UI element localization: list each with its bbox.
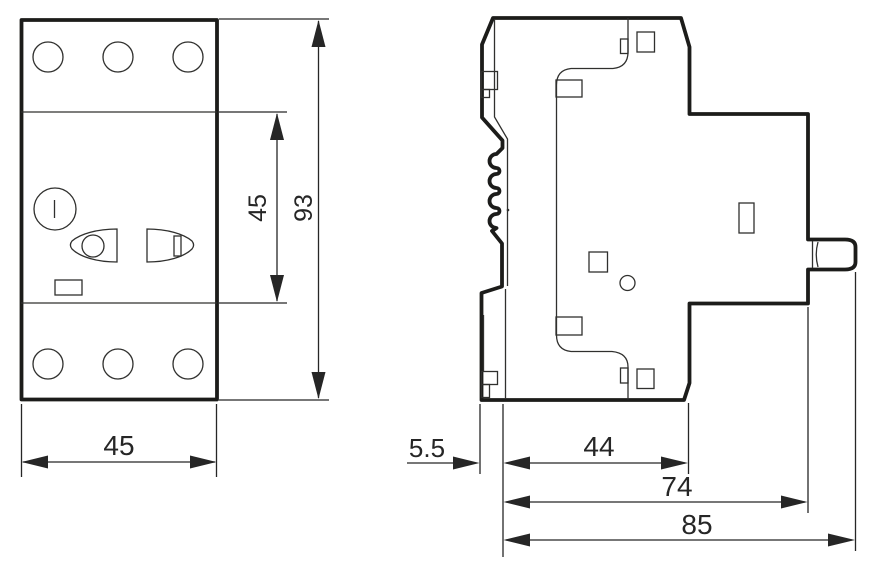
detail-rect — [637, 369, 654, 389]
detail-dot — [507, 209, 510, 212]
front-body — [22, 20, 218, 400]
front-section-contour — [557, 18, 629, 400]
arrowhead-up — [270, 113, 284, 140]
terminal-circle — [33, 42, 63, 72]
arrowhead-up — [312, 20, 326, 47]
arrowhead-right — [190, 456, 217, 469]
button-right — [147, 229, 194, 262]
side-dimensions: 5.5 44 74 85 — [407, 272, 856, 557]
detail-circle — [620, 276, 635, 291]
detail-rect — [621, 39, 629, 54]
side-body-outline — [482, 18, 856, 400]
detail-rect — [589, 252, 608, 272]
dim-label-body-depth: 74 — [661, 471, 692, 502]
terminal-circle — [103, 42, 133, 72]
button-right-slot — [174, 236, 181, 256]
rail-clip-bottom — [482, 372, 498, 385]
dim-label-total-depth: 85 — [681, 509, 712, 540]
dim-label-section-height: 45 — [244, 194, 272, 222]
terminal-circle — [33, 349, 63, 379]
detail-rect — [621, 368, 629, 383]
dimension-drawing: 45 93 45 — [0, 0, 870, 567]
dim-label-clip-depth: 5.5 — [409, 433, 445, 463]
drawing-canvas: 45 93 45 — [0, 0, 870, 567]
front-label-window — [55, 280, 82, 295]
detail-rect — [739, 203, 754, 233]
terminal-circle — [173, 349, 203, 379]
arrowhead-down — [270, 275, 284, 302]
shaft-line — [816, 242, 818, 267]
detail-rect — [637, 32, 655, 52]
dim-label-width: 45 — [103, 430, 134, 461]
detail-rect — [556, 80, 582, 97]
button-left-circle — [82, 235, 104, 257]
detail-rect — [556, 317, 582, 335]
front-dimensions: 45 93 45 — [22, 19, 330, 477]
front-view — [21, 20, 217, 400]
arrowhead-left — [504, 496, 531, 509]
arrowhead-right — [661, 457, 688, 470]
arrowhead-right — [781, 496, 808, 509]
terminal-circle — [173, 42, 203, 72]
arrowhead-left — [504, 534, 531, 547]
arrowhead-left — [504, 457, 531, 470]
dim-label-height: 93 — [290, 194, 318, 222]
arrowhead-right — [453, 457, 480, 470]
arrowhead-right — [828, 534, 855, 547]
dim-label-front-depth: 44 — [583, 431, 614, 462]
terminal-circle — [103, 349, 133, 379]
arrowhead-left — [22, 456, 49, 469]
side-view — [482, 18, 856, 400]
arrowhead-down — [312, 372, 326, 399]
